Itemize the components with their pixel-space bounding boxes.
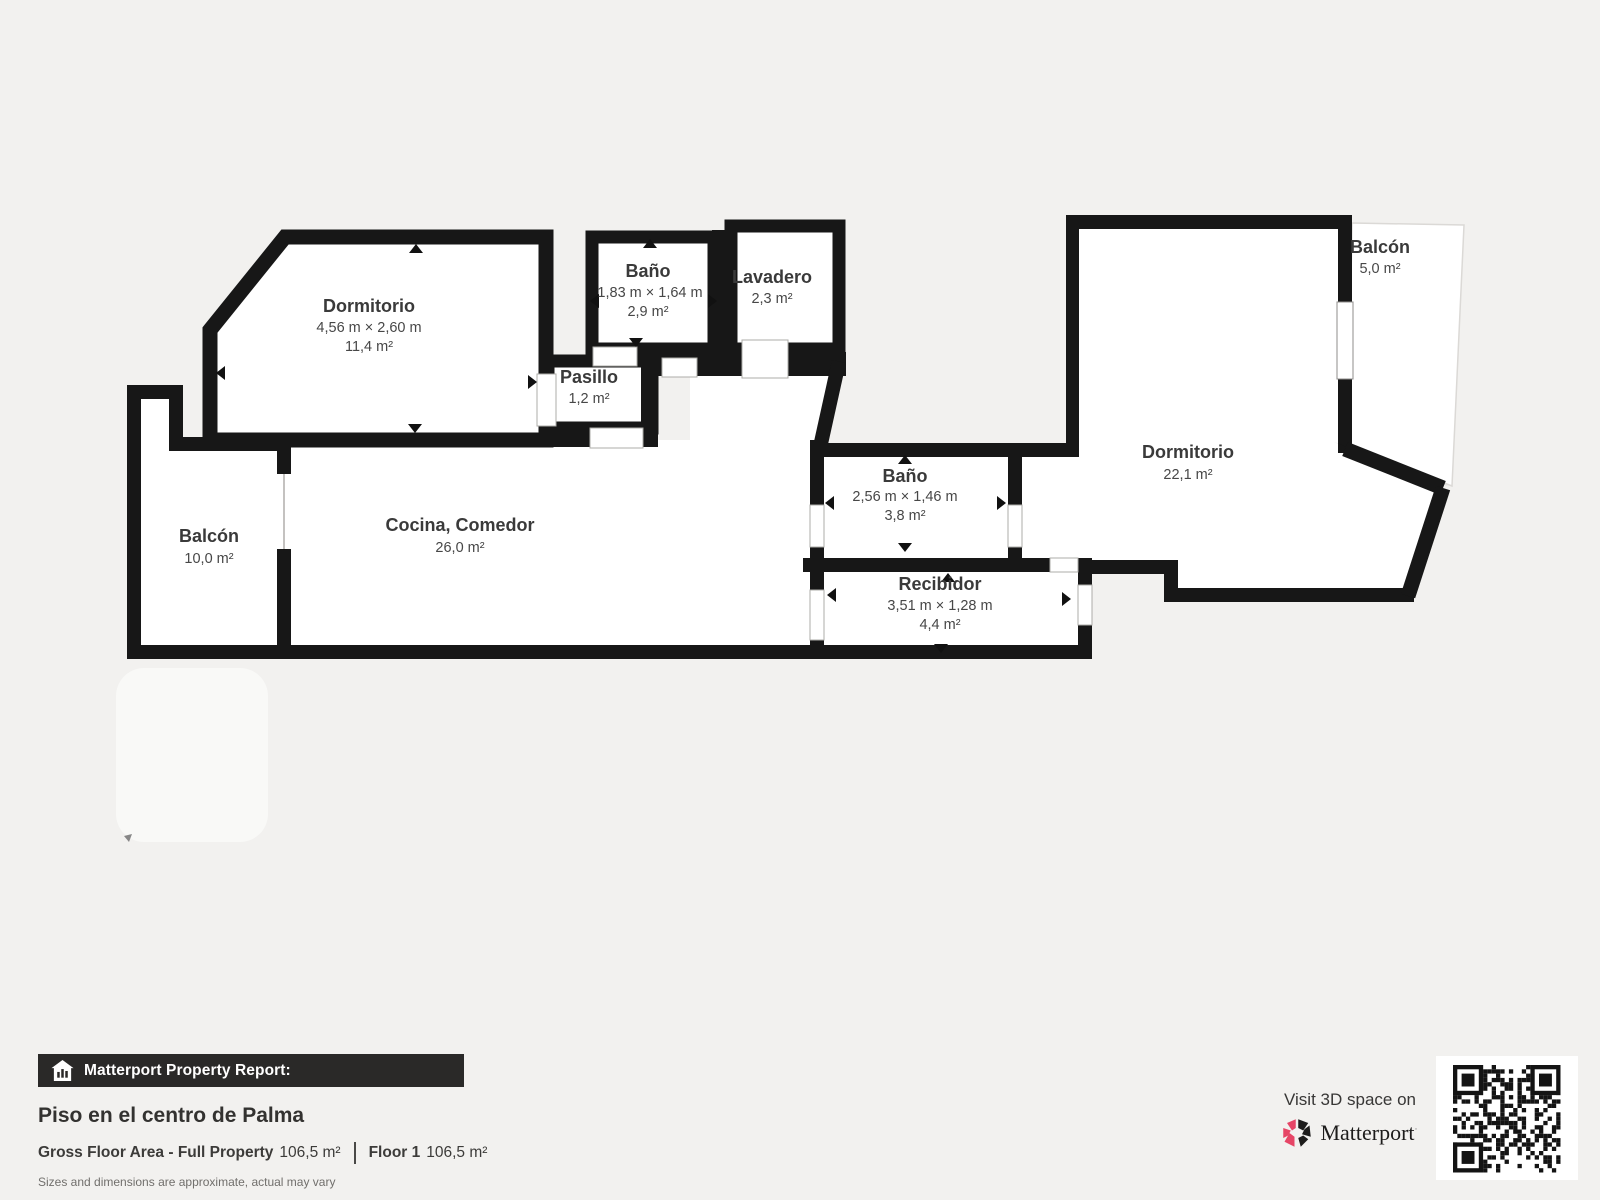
floor-value: 106,5 m²	[426, 1144, 487, 1162]
qr-code	[1436, 1056, 1578, 1180]
visit-3d-text: Visit 3D space on	[1245, 1090, 1455, 1110]
faint-artifact	[116, 668, 268, 842]
window-dormitorio2	[1337, 302, 1353, 379]
room-label: Balcón	[1350, 237, 1410, 257]
room-label: Baño	[626, 261, 671, 281]
room-label: Dormitorio	[323, 296, 415, 316]
room-label: Balcón	[179, 526, 239, 546]
room-area: 1,2 m²	[568, 391, 609, 407]
matterport-wordmark: Matterport·	[1320, 1120, 1417, 1146]
room-area: 10,0 m²	[184, 551, 233, 567]
room-dimensions: 1,83 m × 1,64 m	[597, 285, 702, 301]
room-area: 5,0 m²	[1359, 261, 1400, 277]
report-bar-label: Matterport Property Report:	[84, 1062, 291, 1080]
disclaimer-text: Sizes and dimensions are approximate, ac…	[38, 1175, 558, 1189]
house-stats-icon	[51, 1059, 74, 1082]
room-dimensions: 2,56 m × 1,46 m	[852, 489, 957, 505]
room-area: 26,0 m²	[435, 540, 484, 556]
matterport-pinwheel-icon	[1282, 1118, 1312, 1148]
room-label: Dormitorio	[1142, 442, 1234, 462]
visit-3d-block: Visit 3D space on Matterport·	[1245, 1090, 1455, 1148]
room-dimensions: 3,51 m × 1,28 m	[887, 598, 992, 614]
area-summary: Gross Floor Area - Full Property 106,5 m…	[38, 1142, 558, 1164]
room-area: 22,1 m²	[1163, 467, 1212, 483]
report-bar: Matterport Property Report:	[38, 1054, 464, 1087]
gross-floor-area-value: 106,5 m²	[279, 1144, 340, 1162]
room-area: 3,8 m²	[884, 508, 925, 524]
report-footer: Matterport Property Report: Piso en el c…	[38, 1054, 558, 1189]
room-area: 11,4 m²	[345, 339, 393, 355]
room-area: 4,4 m²	[919, 617, 960, 633]
room-label: Baño	[883, 466, 928, 486]
matterport-logo: Matterport·	[1245, 1118, 1455, 1148]
gross-floor-area-label: Gross Floor Area - Full Property	[38, 1144, 273, 1162]
room-label: Pasillo	[560, 367, 618, 387]
floor-label: Floor 1	[369, 1144, 421, 1162]
room-label: Lavadero	[732, 267, 812, 287]
room-label: Cocina, Comedor	[385, 515, 534, 535]
room-area: 2,3 m²	[751, 291, 792, 307]
property-title: Piso en el centro de Palma	[38, 1104, 558, 1128]
divider	[354, 1142, 356, 1164]
room-label: Recibidor	[898, 574, 981, 594]
room-dimensions: 4,56 m × 2,60 m	[316, 320, 421, 336]
room-area: 2,9 m²	[627, 304, 668, 320]
floor-plan: Dormitorio 4,56 m × 2,60 m 11,4 m² Baño …	[0, 0, 1600, 1200]
